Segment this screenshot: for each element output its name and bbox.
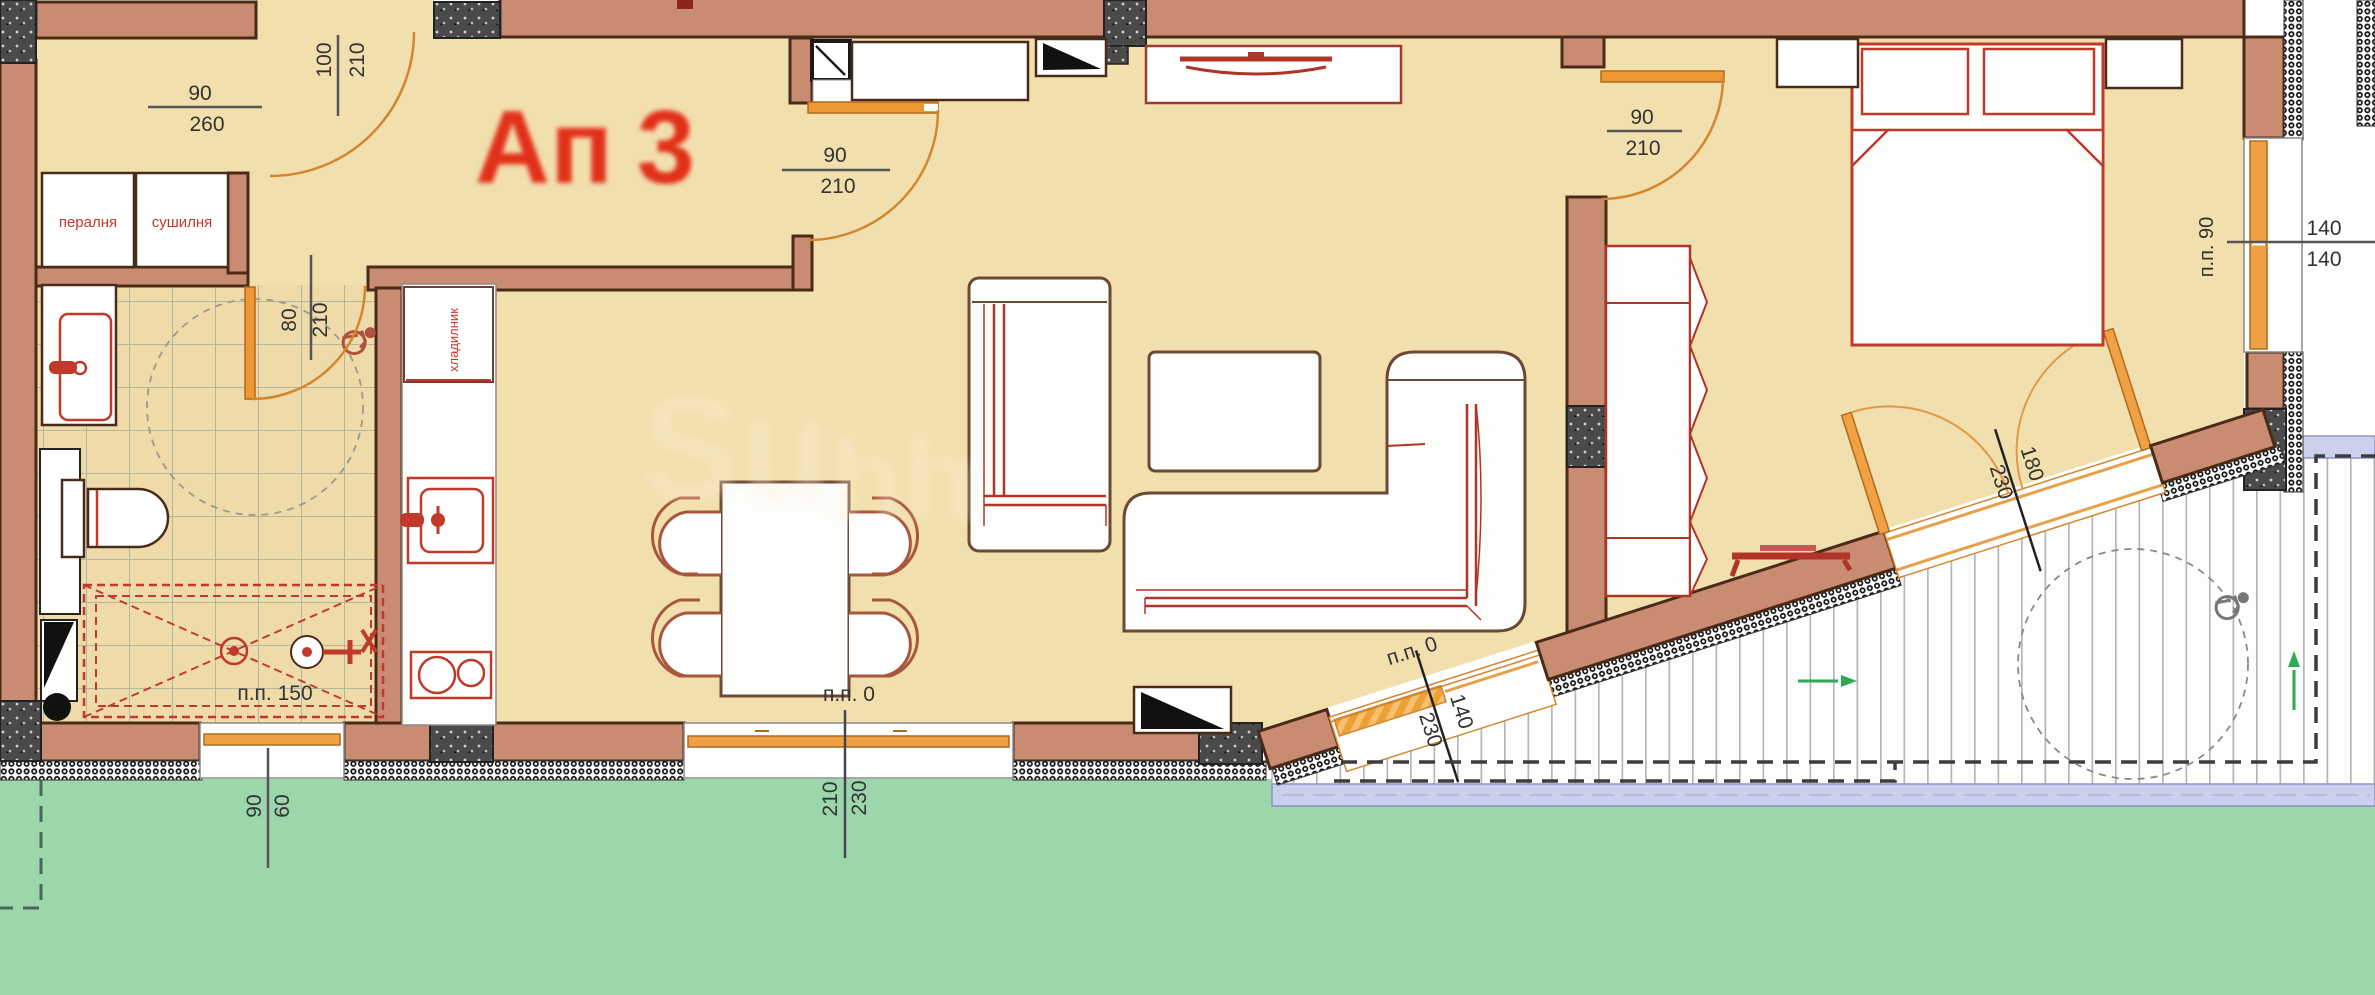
svg-text:140: 140 xyxy=(2306,248,2341,271)
svg-text:п.п. 90: п.п. 90 xyxy=(2196,217,2218,278)
svg-text:сушилня: сушилня xyxy=(152,214,213,231)
svg-text:210: 210 xyxy=(819,781,842,816)
svg-text:210: 210 xyxy=(820,175,855,198)
svg-text:хладилник: хладилник xyxy=(446,308,461,372)
svg-text:Su: Su xyxy=(640,364,832,532)
svg-text:90: 90 xyxy=(823,144,846,167)
svg-text:п.п. 0: п.п. 0 xyxy=(823,683,875,706)
svg-text:80: 80 xyxy=(278,308,301,331)
svg-text:210: 210 xyxy=(1625,137,1660,160)
svg-text:90: 90 xyxy=(243,794,266,817)
svg-text:60: 60 xyxy=(271,794,294,817)
svg-text:210: 210 xyxy=(309,302,332,337)
svg-text:3: 3 xyxy=(637,90,695,206)
svg-text:90: 90 xyxy=(188,82,211,105)
svg-text:90: 90 xyxy=(1630,106,1653,129)
svg-text:100: 100 xyxy=(313,42,336,77)
svg-text:210: 210 xyxy=(346,42,369,77)
svg-text:п.п. 150: п.п. 150 xyxy=(237,682,312,705)
svg-text:260: 260 xyxy=(189,113,224,136)
svg-text:пералня: пералня xyxy=(59,214,117,231)
svg-text:hh: hh xyxy=(830,412,977,546)
svg-text:Ап: Ап xyxy=(475,90,613,206)
svg-text:230: 230 xyxy=(848,780,871,815)
svg-text:140: 140 xyxy=(2306,217,2341,240)
